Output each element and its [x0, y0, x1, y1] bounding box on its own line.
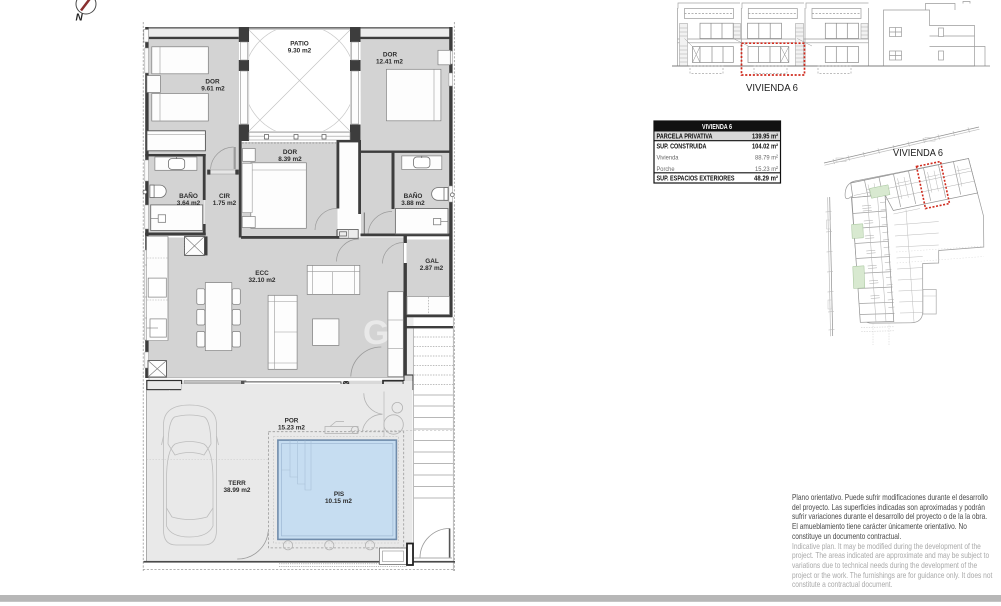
svg-text:15.23 m2: 15.23 m2: [278, 425, 305, 432]
svg-text:38.99 m2: 38.99 m2: [223, 487, 250, 494]
svg-text:VIVIENDA 6: VIVIENDA 6: [746, 82, 798, 94]
svg-text:104.02 m²: 104.02 m²: [752, 143, 779, 150]
svg-text:SUP. ESPACIOS EXTERIORES: SUP. ESPACIOS EXTERIORES: [657, 175, 735, 182]
svg-text:139.95 m²: 139.95 m²: [752, 134, 779, 141]
svg-text:32.10 m2: 32.10 m2: [248, 277, 275, 284]
svg-text:Vivienda: Vivienda: [657, 155, 679, 162]
svg-text:PATIO: PATIO: [290, 41, 309, 48]
svg-text:DOR: DOR: [283, 149, 298, 156]
svg-text:BAÑO: BAÑO: [404, 191, 423, 200]
svg-text:9.30 m2: 9.30 m2: [288, 48, 312, 55]
svg-text:15.23 m²: 15.23 m²: [755, 166, 779, 173]
svg-text:DOR: DOR: [205, 79, 220, 86]
svg-text:N: N: [76, 13, 84, 24]
svg-text:G: G: [363, 314, 389, 352]
svg-text:BAÑO: BAÑO: [179, 191, 198, 200]
svg-text:CIR: CIR: [219, 193, 230, 200]
svg-text:Porche: Porche: [657, 166, 675, 173]
svg-text:48.29 m²: 48.29 m²: [754, 175, 779, 182]
svg-text:GAL: GAL: [425, 258, 439, 265]
svg-text:POR: POR: [285, 418, 299, 425]
svg-text:12.41 m2: 12.41 m2: [376, 59, 403, 66]
svg-text:8.39 m2: 8.39 m2: [278, 156, 302, 163]
svg-text:9.61 m2: 9.61 m2: [201, 86, 225, 93]
svg-text:DOR: DOR: [383, 52, 398, 59]
svg-text:10.15 m2: 10.15 m2: [325, 498, 352, 505]
svg-text:SUP. CONSTRUIDA: SUP. CONSTRUIDA: [657, 143, 707, 150]
svg-text:2.87 m2: 2.87 m2: [420, 265, 444, 272]
svg-text:PIS: PIS: [334, 491, 345, 498]
svg-text:88.79 m²: 88.79 m²: [755, 155, 779, 162]
svg-text:3.64 m2: 3.64 m2: [177, 200, 201, 207]
svg-text:3.88 m2: 3.88 m2: [401, 200, 425, 207]
svg-text:TERR: TERR: [228, 480, 246, 487]
svg-text:PARCELA PRIVATIVA: PARCELA PRIVATIVA: [657, 134, 713, 141]
svg-text:VIVIENDA 6: VIVIENDA 6: [893, 147, 943, 159]
svg-text:VIVIENDA 6: VIVIENDA 6: [702, 124, 732, 131]
svg-text:1.75 m2: 1.75 m2: [213, 200, 237, 207]
svg-text:ECC: ECC: [255, 270, 269, 277]
